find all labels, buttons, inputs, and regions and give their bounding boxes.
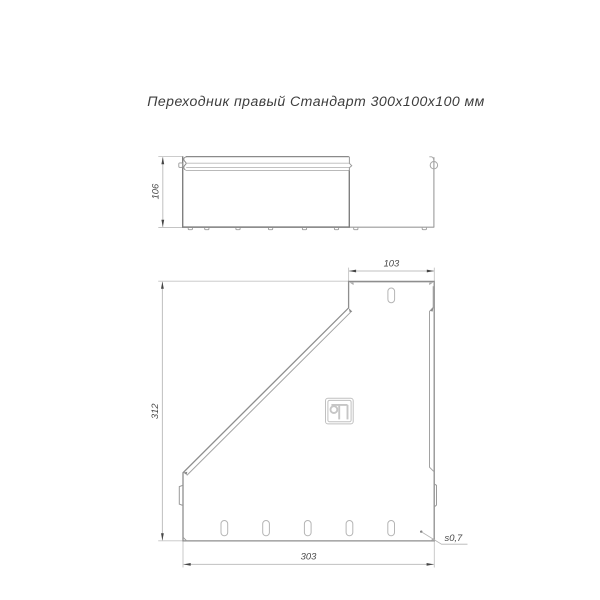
- svg-text:s0,7: s0,7: [445, 532, 464, 543]
- svg-text:106: 106: [149, 183, 160, 199]
- svg-text:103: 103: [384, 258, 400, 269]
- svg-text:312: 312: [149, 403, 160, 419]
- svg-text:Переходник правый Стандарт 300: Переходник правый Стандарт 300х100х100 м…: [147, 93, 485, 109]
- svg-text:303: 303: [301, 551, 317, 562]
